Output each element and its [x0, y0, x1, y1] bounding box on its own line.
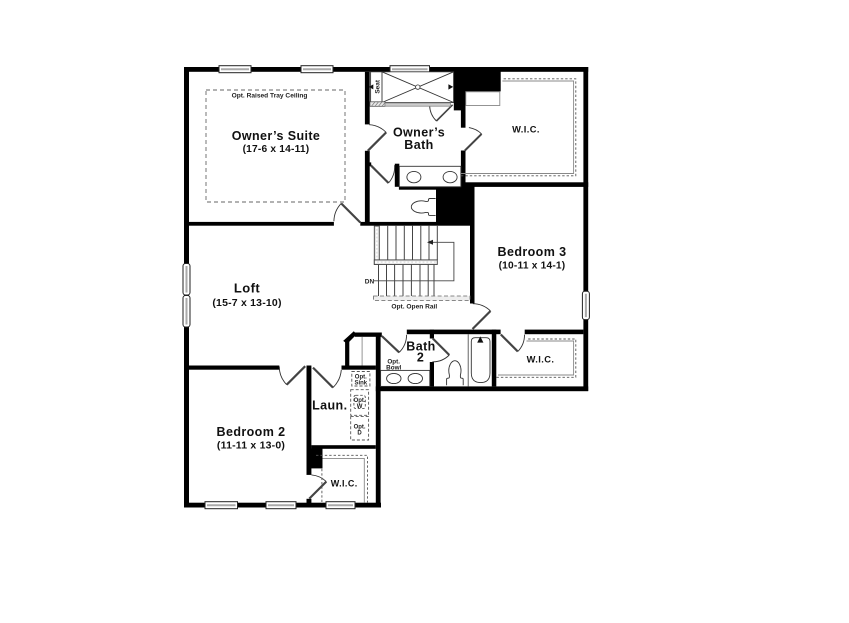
svg-text:Bedroom 3: Bedroom 3 — [498, 245, 567, 259]
svg-text:2: 2 — [417, 351, 424, 365]
svg-text:Laun.: Laun. — [312, 399, 347, 413]
svg-text:Owner’s Suite: Owner’s Suite — [232, 129, 321, 143]
svg-text:Sink: Sink — [354, 381, 367, 387]
svg-text:W: W — [357, 404, 363, 410]
svg-text:Opt.: Opt. — [354, 425, 366, 431]
svg-text:Opt.: Opt. — [354, 398, 366, 404]
svg-text:Bath: Bath — [404, 138, 433, 152]
svg-text:Seat: Seat — [374, 79, 381, 94]
svg-text:D: D — [357, 431, 362, 437]
svg-text:Opt. Raised Tray Ceiling: Opt. Raised Tray Ceiling — [232, 93, 308, 100]
svg-text:(11-11 x 13-0): (11-11 x 13-0) — [217, 440, 285, 452]
svg-text:Bedroom 2: Bedroom 2 — [217, 425, 286, 439]
svg-text:Opt.: Opt. — [355, 374, 367, 380]
svg-text:DN: DN — [365, 278, 375, 285]
svg-text:Loft: Loft — [234, 281, 260, 296]
svg-text:Opt. Open Rail: Opt. Open Rail — [391, 304, 437, 311]
svg-text:(10-11 x 14-1): (10-11 x 14-1) — [499, 261, 566, 272]
svg-text:W.I.C.: W.I.C. — [331, 478, 358, 488]
svg-text:(17-6 x 14-11): (17-6 x 14-11) — [243, 144, 310, 155]
svg-text:(15-7 x 13-10): (15-7 x 13-10) — [212, 297, 281, 309]
svg-text:W.I.C.: W.I.C. — [527, 354, 555, 364]
svg-text:W.I.C.: W.I.C. — [512, 125, 540, 135]
svg-text:Bowl: Bowl — [386, 364, 401, 371]
